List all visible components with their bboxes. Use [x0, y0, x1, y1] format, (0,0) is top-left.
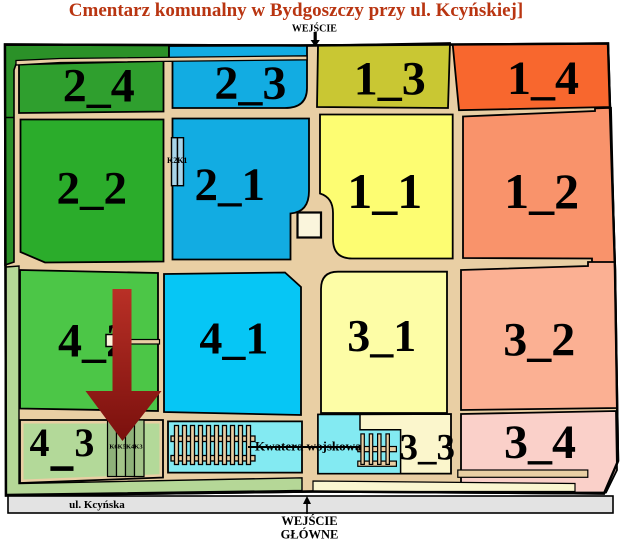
svg-text:K2K1: K2K1 — [167, 156, 187, 165]
svg-text:WEJŚCIE: WEJŚCIE — [281, 514, 337, 528]
svg-text:GŁÓWNE: GŁÓWNE — [281, 528, 339, 539]
svg-text:K6K5K4K3: K6K5K4K3 — [109, 444, 143, 451]
svg-text:Cmentarz komunalny w Bydgoszcz: Cmentarz komunalny w Bydgoszczy przy ul.… — [69, 0, 523, 21]
svg-text:2_4: 2_4 — [63, 60, 135, 113]
svg-text:1_2: 1_2 — [504, 163, 579, 219]
svg-text:4_1: 4_1 — [199, 313, 268, 364]
svg-text:Kwatera wojskowa: Kwatera wojskowa — [255, 439, 362, 454]
svg-text:2_1: 2_1 — [194, 159, 265, 211]
svg-text:2_2: 2_2 — [56, 163, 127, 215]
svg-text:1_4: 1_4 — [507, 52, 579, 105]
svg-text:2_3: 2_3 — [214, 57, 286, 110]
svg-text:4: 4 — [30, 420, 50, 465]
svg-text:3: 3 — [74, 420, 94, 465]
svg-text:1_3: 1_3 — [354, 53, 426, 106]
svg-text:3_1: 3_1 — [347, 310, 416, 361]
svg-text:3_4: 3_4 — [504, 416, 576, 469]
svg-text:3_3: 3_3 — [400, 428, 456, 469]
svg-text:1_1: 1_1 — [347, 163, 422, 219]
svg-text:3_2: 3_2 — [503, 314, 575, 367]
svg-text:ul. Kcyńska: ul. Kcyńska — [69, 499, 125, 511]
